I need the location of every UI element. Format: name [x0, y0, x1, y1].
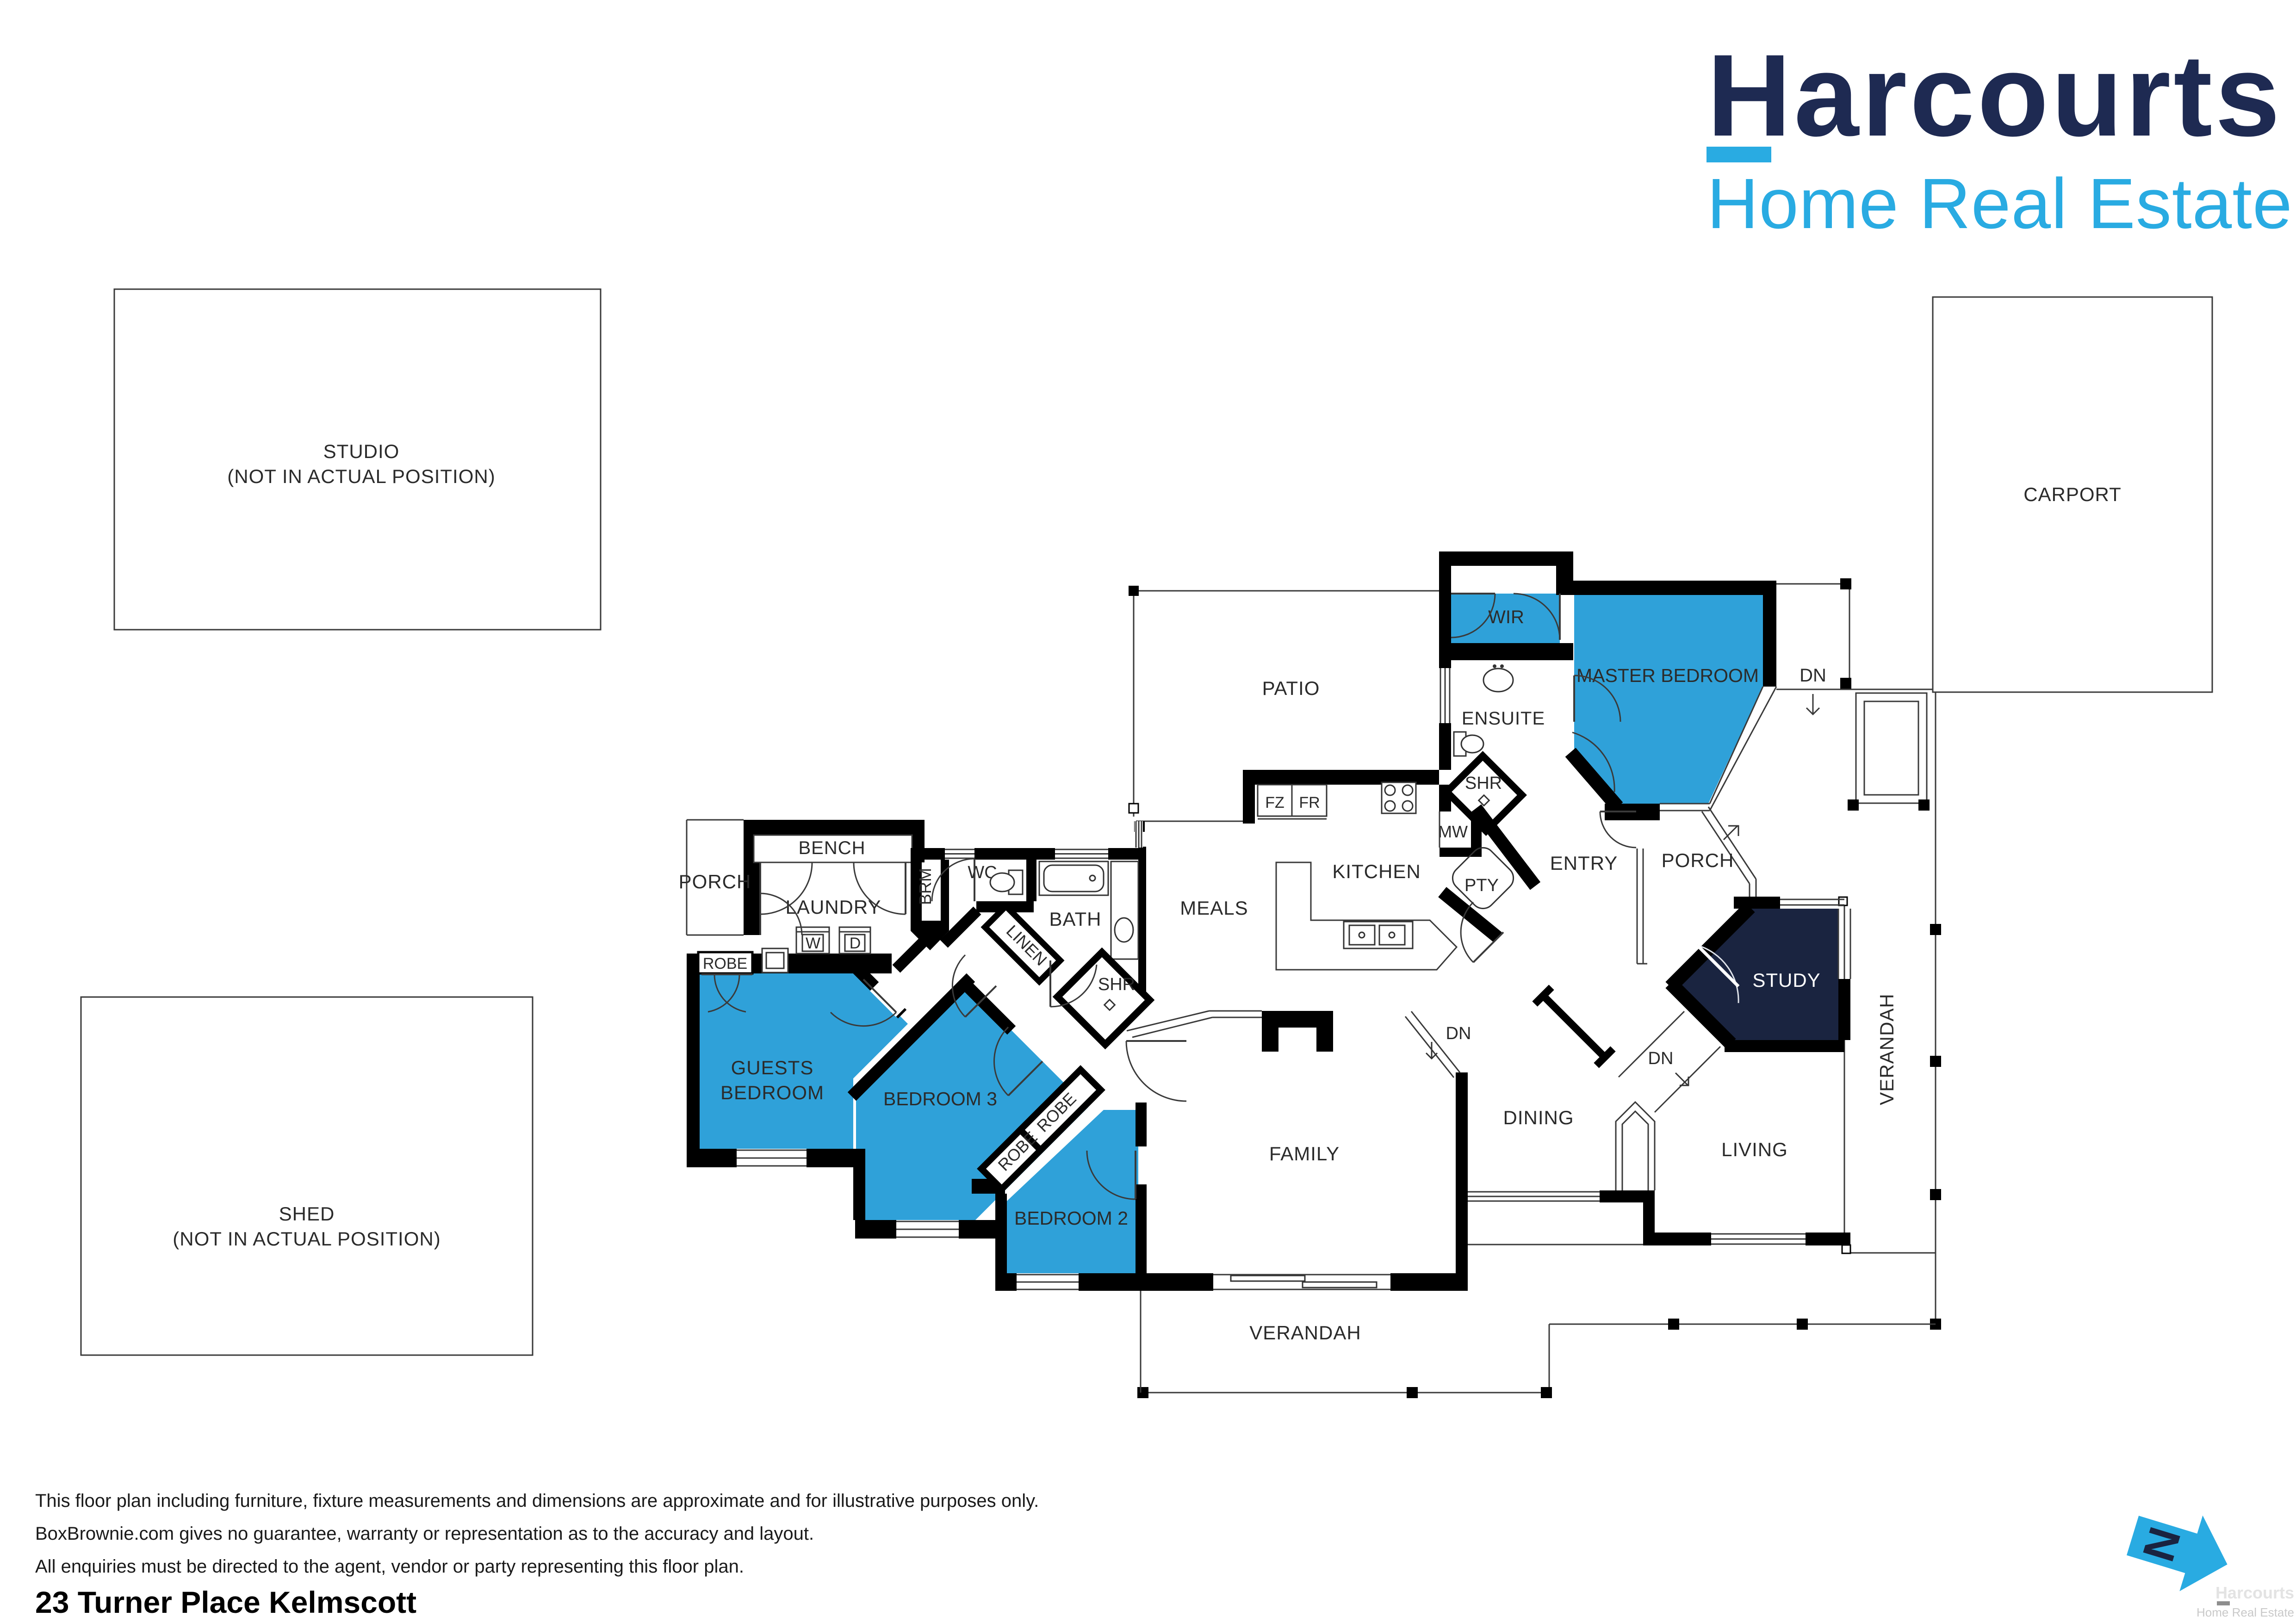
svg-text:STUDIO: STUDIO: [323, 440, 400, 462]
svg-text:BoxBrownie.com gives no guaran: BoxBrownie.com gives no guarantee, warra…: [35, 1524, 814, 1544]
svg-text:23 Turner Place Kelmscott: 23 Turner Place Kelmscott: [35, 1585, 416, 1619]
svg-text:MEALS: MEALS: [1180, 897, 1248, 919]
svg-text:KITCHEN: KITCHEN: [1332, 861, 1421, 882]
svg-text:ENTRY: ENTRY: [1550, 852, 1618, 874]
svg-text:All enquiries must be directed: All enquiries must be directed to the ag…: [35, 1556, 744, 1577]
svg-text:GUESTS: GUESTS: [731, 1057, 814, 1078]
svg-text:Home Real Estate: Home Real Estate: [1707, 164, 2293, 243]
svg-text:PORCH: PORCH: [679, 871, 751, 892]
svg-text:MW: MW: [1438, 822, 1468, 841]
svg-text:(NOT IN ACTUAL POSITION): (NOT IN ACTUAL POSITION): [227, 465, 495, 487]
svg-text:Harcourts: Harcourts: [1707, 31, 2283, 161]
svg-text:PTY: PTY: [1464, 876, 1499, 895]
svg-text:ENSUITE: ENSUITE: [1462, 708, 1545, 729]
svg-text:PORCH: PORCH: [1662, 849, 1734, 871]
svg-text:Home Real Estate: Home Real Estate: [2197, 1605, 2294, 1619]
svg-text:CARPORT: CARPORT: [2023, 483, 2122, 505]
svg-text:(NOT IN ACTUAL POSITION): (NOT IN ACTUAL POSITION): [173, 1228, 441, 1250]
svg-text:BENCH: BENCH: [798, 838, 865, 858]
svg-text:This floor plan including furn: This floor plan including furniture, fix…: [35, 1491, 1039, 1511]
svg-text:LIVING: LIVING: [1721, 1139, 1788, 1160]
svg-text:DN: DN: [1648, 1049, 1674, 1068]
svg-text:PATIO: PATIO: [1262, 677, 1320, 699]
svg-text:BEDROOM 2: BEDROOM 2: [1014, 1208, 1128, 1229]
svg-text:SHR: SHR: [1098, 975, 1135, 994]
svg-text:DN: DN: [1446, 1024, 1471, 1043]
svg-text:FZ: FZ: [1265, 794, 1285, 811]
svg-text:DN: DN: [1800, 665, 1826, 686]
svg-text:BEDROOM: BEDROOM: [720, 1082, 824, 1103]
svg-text:WIR: WIR: [1488, 607, 1524, 627]
svg-text:MASTER BEDROOM: MASTER BEDROOM: [1576, 665, 1759, 686]
svg-text:Harcourts: Harcourts: [2215, 1583, 2294, 1602]
svg-text:D: D: [850, 935, 861, 952]
svg-text:W: W: [806, 935, 820, 952]
svg-text:SHED: SHED: [279, 1203, 335, 1225]
svg-text:VERANDAH: VERANDAH: [1249, 1322, 1361, 1344]
svg-text:DINING: DINING: [1503, 1107, 1574, 1128]
svg-text:LAUNDRY: LAUNDRY: [786, 896, 881, 918]
svg-text:FR: FR: [1299, 794, 1320, 811]
svg-text:BEDROOM 3: BEDROOM 3: [883, 1088, 997, 1109]
svg-text:ROBE: ROBE: [703, 955, 747, 973]
svg-text:SHR: SHR: [1465, 774, 1502, 793]
svg-text:VERANDAH: VERANDAH: [1876, 993, 1898, 1105]
svg-text:FAMILY: FAMILY: [1269, 1143, 1340, 1165]
svg-text:BATH: BATH: [1049, 908, 1102, 930]
svg-text:STUDY: STUDY: [1752, 969, 1820, 991]
